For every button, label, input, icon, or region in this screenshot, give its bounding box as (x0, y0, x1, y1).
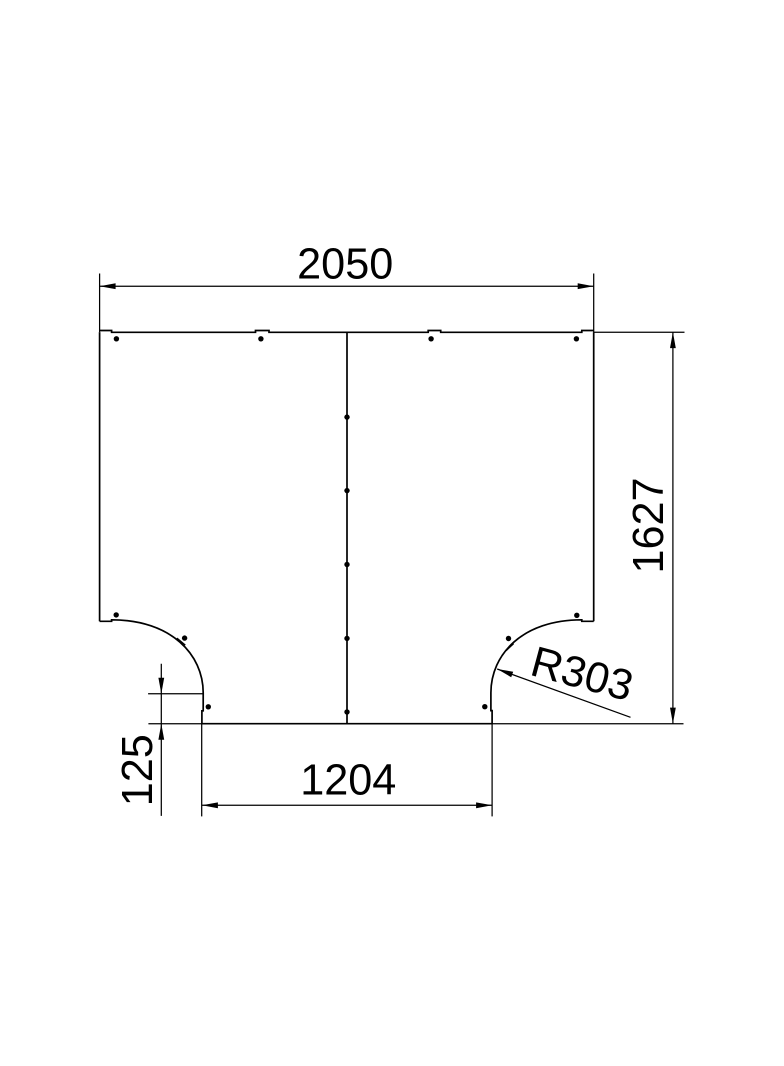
svg-text:1627: 1627 (625, 477, 673, 573)
svg-text:2050: 2050 (297, 240, 393, 288)
svg-text:125: 125 (114, 734, 162, 806)
svg-text:1204: 1204 (300, 756, 396, 804)
